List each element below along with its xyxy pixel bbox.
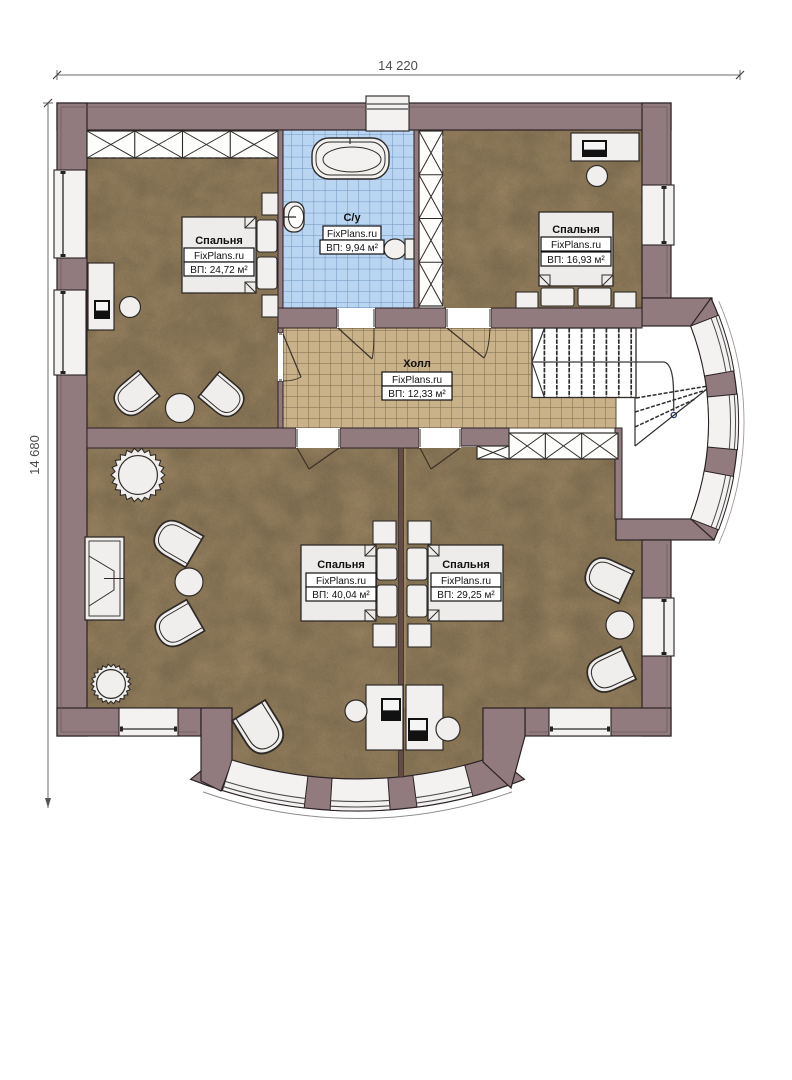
svg-text:FixPlans.ru: FixPlans.ru — [316, 576, 366, 587]
svg-text:ВП: 16,93 м²: ВП: 16,93 м² — [547, 255, 605, 266]
svg-text:Спальня: Спальня — [552, 224, 600, 236]
svg-text:ВП: 29,25 м²: ВП: 29,25 м² — [437, 590, 495, 601]
svg-text:Спальня: Спальня — [442, 559, 490, 571]
svg-text:FixPlans.ru: FixPlans.ru — [441, 576, 491, 587]
svg-text:Холл: Холл — [403, 358, 431, 370]
svg-text:FixPlans.ru: FixPlans.ru — [551, 240, 601, 251]
svg-text:FixPlans.ru: FixPlans.ru — [392, 375, 442, 386]
svg-text:14 680: 14 680 — [27, 435, 42, 475]
svg-text:Спальня: Спальня — [195, 235, 243, 247]
svg-text:ВП: 12,33 м²: ВП: 12,33 м² — [388, 389, 446, 400]
svg-text:ВП: 24,72 м²: ВП: 24,72 м² — [190, 265, 248, 276]
svg-text:Спальня: Спальня — [317, 559, 365, 571]
svg-text:С/у: С/у — [343, 212, 361, 224]
svg-text:ВП: 40,04 м²: ВП: 40,04 м² — [312, 590, 370, 601]
svg-text:14 220: 14 220 — [378, 58, 418, 73]
svg-text:FixPlans.ru: FixPlans.ru — [194, 251, 244, 262]
svg-text:ВП: 9,94 м²: ВП: 9,94 м² — [326, 243, 379, 254]
svg-text:FixPlans.ru: FixPlans.ru — [327, 229, 377, 240]
